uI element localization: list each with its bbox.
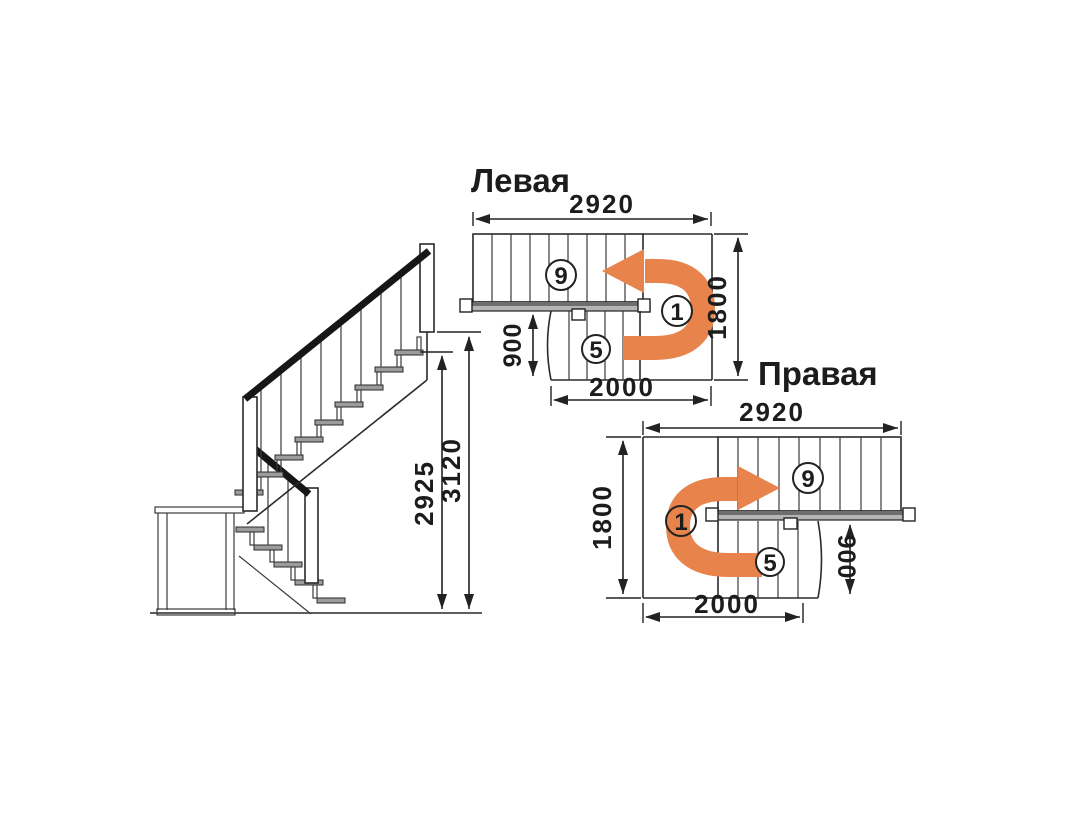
lower-handrail [249, 444, 309, 494]
right-dim-flight-label: 900 [832, 535, 860, 580]
left-dim-width-label: 2920 [569, 189, 635, 219]
dim-total-height-label: 3120 [436, 437, 466, 503]
right-dim-run-label: 2000 [694, 589, 760, 619]
bottom-newel-post [243, 397, 257, 511]
elevation-dimensions: 2925 3120 [409, 332, 481, 609]
left-dim-depth-label: 1800 [702, 274, 732, 340]
right-upper-steps-label: 9 [801, 466, 814, 493]
left-landing-bar [460, 299, 650, 320]
right-plan-title: Правая [758, 355, 878, 392]
lower-newel-post [305, 488, 318, 583]
right-start-step-label: 1 [674, 509, 687, 536]
left-dim-run-label: 2000 [589, 372, 655, 402]
left-plan: Левая 2920 [460, 162, 748, 406]
dim-floor-height-label: 2925 [409, 460, 439, 526]
left-dim-flight-label: 900 [499, 323, 527, 368]
left-upper-steps-label: 9 [554, 263, 567, 290]
right-landing-bar [706, 508, 915, 529]
upper-flight-elevation [235, 244, 434, 524]
staircase-elevation: 2925 3120 [150, 244, 482, 615]
landing-platform-box [155, 507, 244, 615]
left-lower-steps-label: 5 [589, 337, 602, 364]
right-dim-width-label: 2920 [739, 397, 805, 427]
left-plan-title: Левая [471, 162, 570, 199]
stair-drawing-page: 2925 3120 Левая 2920 [0, 0, 1086, 816]
stair-diagram: 2925 3120 Левая 2920 [0, 0, 1086, 816]
right-dim-depth-label: 1800 [587, 484, 617, 550]
left-start-step-label: 1 [670, 299, 683, 326]
right-lower-steps-label: 5 [763, 550, 776, 577]
left-turn-direction-arrow-icon [602, 249, 703, 348]
